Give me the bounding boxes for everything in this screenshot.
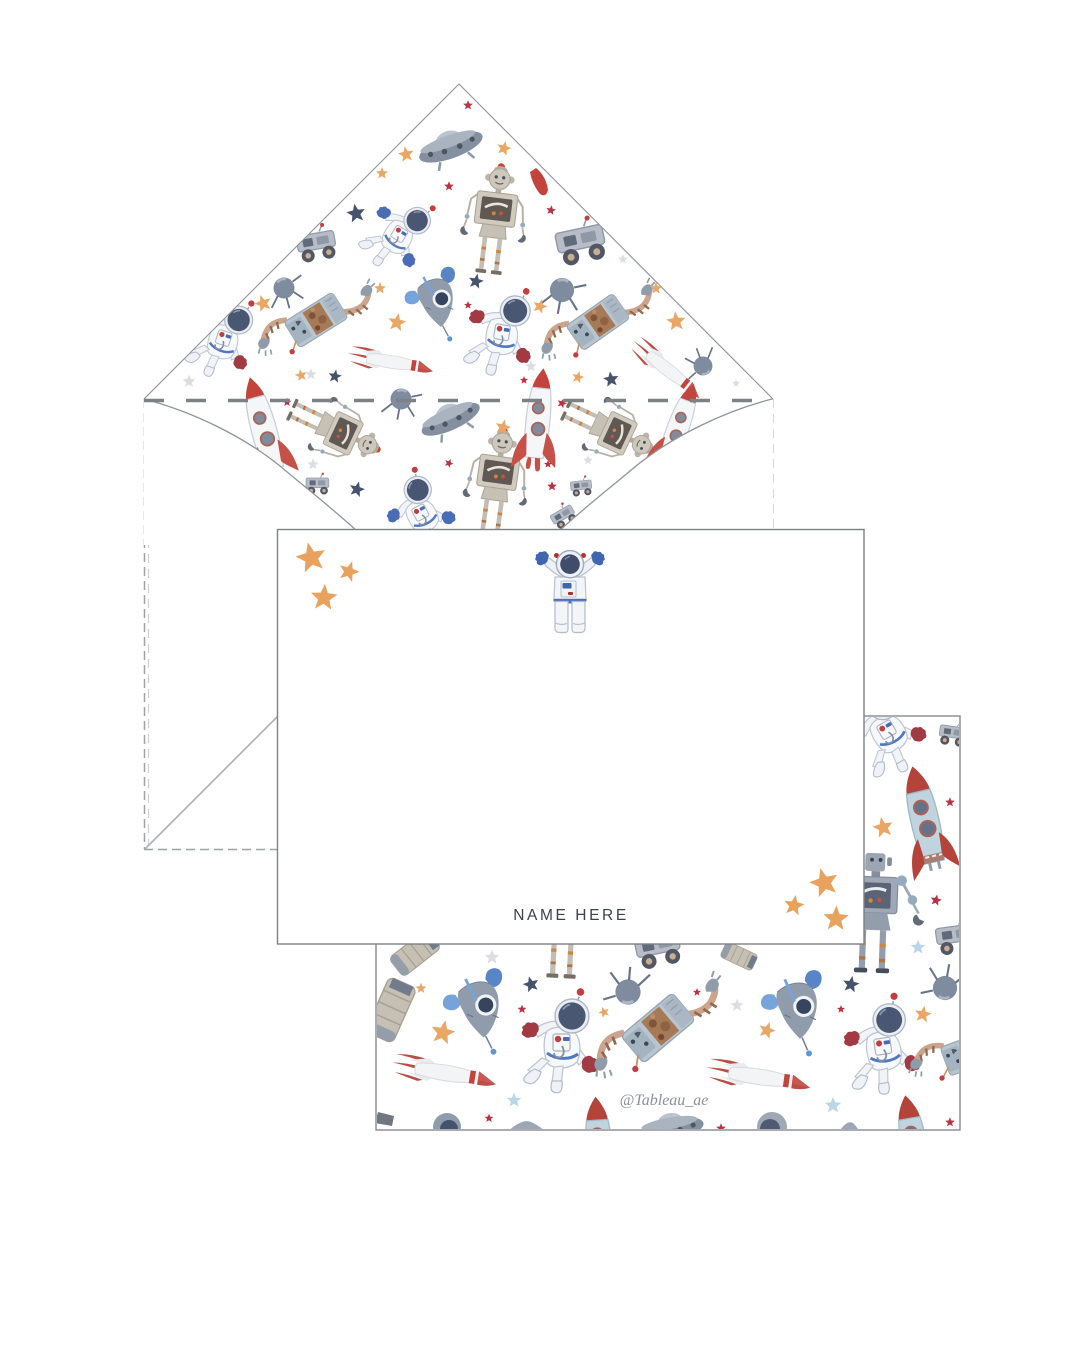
svg-text:@Tableau_ae: @Tableau_ae — [620, 1092, 709, 1109]
svg-text:NAME HERE: NAME HERE — [513, 907, 629, 924]
